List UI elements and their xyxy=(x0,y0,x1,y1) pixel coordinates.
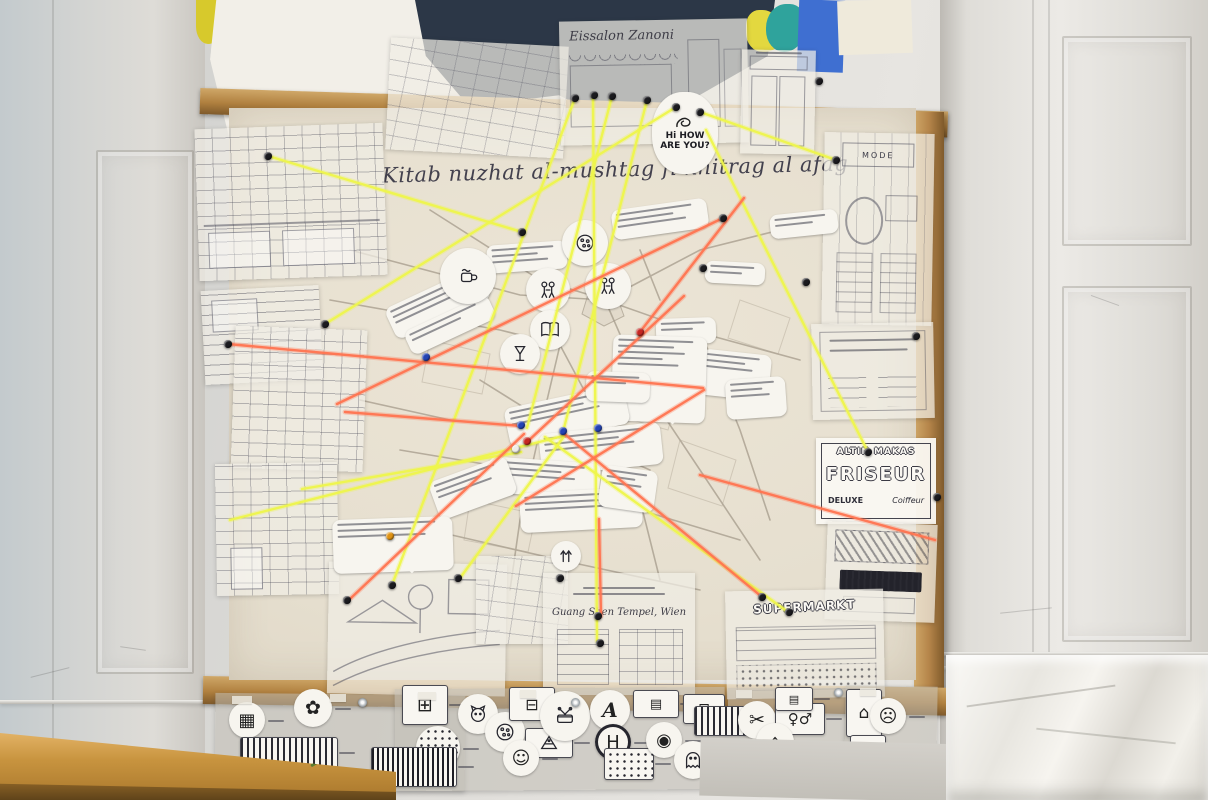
photo-scene: Kitab nuzhat al-mushtag fi khitrag al af… xyxy=(0,0,1208,800)
tape-piece xyxy=(736,690,752,698)
tape-piece xyxy=(330,694,346,702)
screw xyxy=(834,688,843,697)
tape-piece xyxy=(520,690,536,698)
crumpled-paper xyxy=(946,655,1208,800)
tape-piece xyxy=(860,688,876,696)
tape-piece xyxy=(232,696,252,704)
screw xyxy=(571,698,580,707)
tape-piece xyxy=(418,692,436,700)
screw xyxy=(358,698,367,707)
dark-bench xyxy=(436,766,702,800)
